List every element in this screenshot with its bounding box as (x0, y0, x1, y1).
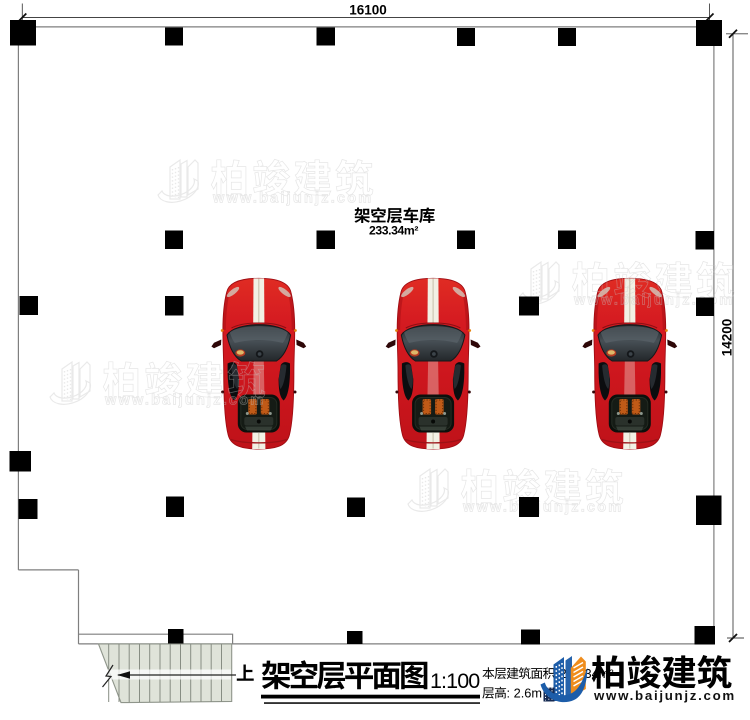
svg-text:www.baijunjz.com: www.baijunjz.com (462, 500, 623, 516)
svg-text:www.baijunjz.com: www.baijunjz.com (593, 688, 736, 703)
svg-text:14200: 14200 (720, 319, 735, 357)
svg-text:www.baijunjz.com: www.baijunjz.com (212, 191, 373, 207)
svg-text:1:100: 1:100 (430, 669, 480, 693)
svg-text:www.baijunjz.com: www.baijunjz.com (104, 393, 265, 409)
svg-text:16100: 16100 (349, 3, 387, 18)
svg-text:233.34m²: 233.34m² (369, 224, 418, 238)
svg-text:: 2.6m: : 2.6m (507, 686, 543, 701)
